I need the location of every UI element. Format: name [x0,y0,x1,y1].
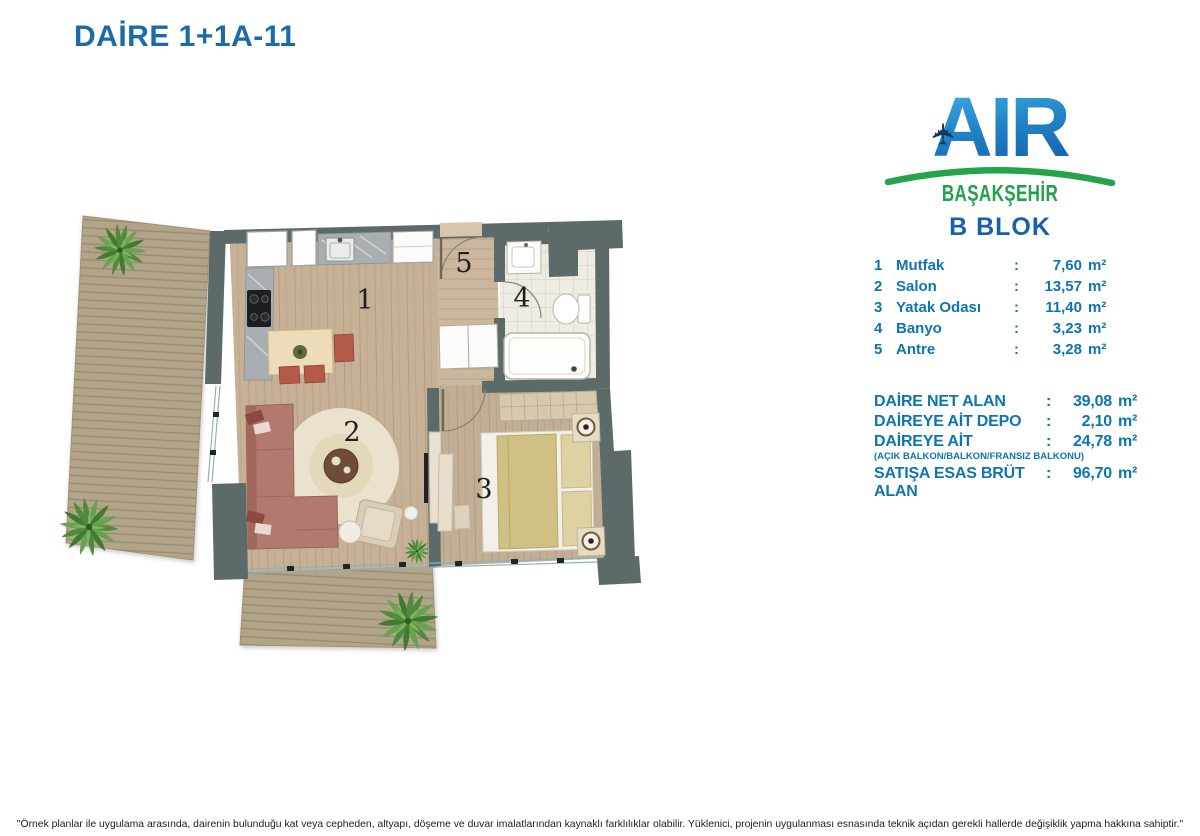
room-name: Mutfak [896,257,1014,274]
room-row-banyo: 4 Banyo : 3,23 m² [874,320,1134,337]
entrance-door-opening [440,222,482,237]
summary-value: 24,78 [1056,433,1112,451]
room-row-yatak-odasi: 3 Yatak Odası : 11,40 m² [874,299,1134,316]
kitchen-window-1 [247,231,287,267]
armchair [352,499,404,549]
summary-value: 96,70 [1056,465,1112,483]
left-pier [212,483,248,580]
room-no: 1 [874,257,896,274]
area-summary: DAİRE NET ALAN : 39,08 m² DAİREYE AİT DE… [874,393,1154,503]
air-logo: AIR ✈ [870,76,1130,178]
bathtub [504,333,590,379]
coffee-table [324,449,358,483]
summary-row-net-alan: DAİRE NET ALAN : 39,08 m² [874,393,1154,411]
stool [454,505,470,529]
room-name: Antre [896,341,1014,358]
dresser [438,454,453,531]
room-value: 3,28 [1026,341,1082,358]
disclaimer-text: "Örnek planlar ile uygulama arasında, da… [0,819,1200,830]
summary-sep: : [1046,413,1056,431]
room-unit: m² [1082,257,1110,274]
entry-closet [439,324,498,369]
logo-block: AIR ✈ BAŞAKŞEHİR B BLOK [870,76,1130,242]
room-sep: : [1014,320,1026,337]
room-no: 5 [874,341,896,358]
terrace-glass-door [208,386,220,482]
room-unit: m² [1082,320,1110,337]
summary-unit: m² [1112,433,1140,451]
room-row-salon: 2 Salon : 13,57 m² [874,278,1134,295]
summary-unit: m² [1112,413,1140,431]
block-title: B BLOK [870,213,1130,242]
room-row-antre: 5 Antre : 3,28 m² [874,341,1134,358]
cooktop [247,290,271,327]
room-name: Salon [896,278,1014,295]
decor-plant-white [405,507,418,520]
summary-unit: m² [1112,465,1140,483]
toilet-tank [578,295,590,323]
bed-blanket [497,434,558,549]
room-sep: : [1014,257,1026,274]
label-salon: 2 [343,417,360,448]
entry-bath-wall-upper [494,236,505,282]
room-sep: : [1014,299,1026,316]
side-table [339,521,361,543]
room-name: Yatak Odası [896,299,1014,316]
label-banyo: 4 [513,283,530,314]
room-value: 3,23 [1026,320,1082,337]
room-no: 2 [874,278,896,295]
room-row-mutfak: 1 Mutfak : 7,60 m² [874,257,1134,274]
summary-row-brut-alan: SATIŞA ESAS BRÜT ALAN : 96,70 m² [874,465,1154,501]
summary-label: SATIŞA ESAS BRÜT ALAN [874,465,1046,501]
summary-row-daireye-ait: DAİREYE AİT : 24,78 m² [874,433,1154,451]
room-value: 11,40 [1026,299,1082,316]
toilet [553,294,579,324]
logo-subtitle: BAŞAKŞEHİR [904,180,1096,207]
tv [424,453,428,503]
room-no: 3 [874,299,896,316]
room-sep: : [1014,341,1026,358]
summary-label: DAİREYE AİT DEPO [874,413,1046,431]
summary-label: DAİRE NET ALAN [874,393,1046,411]
room-value: 7,60 [1026,257,1082,274]
summary-sep: : [1046,433,1056,451]
summary-value: 2,10 [1056,413,1112,431]
summary-balkon-note: (AÇIK BALKON/BALKON/FRANSIZ BALKONU) [874,451,1154,462]
summary-unit: m² [1112,393,1140,411]
room-unit: m² [1082,278,1110,295]
airplane-icon: ✈ [928,121,961,146]
room-sep: : [1014,278,1026,295]
summary-row-depo: DAİREYE AİT DEPO : 2,10 m² [874,413,1154,431]
floorplan-page: DAİRE 1+1A-11 [0,0,1200,836]
label-antre: 5 [455,248,472,279]
label-yatak-odasi: 3 [475,474,492,505]
label-mutfak: 1 [356,285,373,316]
room-list: 1 Mutfak : 7,60 m² 2 Salon : 13,57 m² 3 … [874,257,1134,362]
summary-value: 39,08 [1056,393,1112,411]
right-pier [600,450,635,562]
right-foot-pier [597,556,641,585]
closet-box-2 [468,324,498,368]
room-unit: m² [1082,299,1110,316]
room-value: 13,57 [1026,278,1082,295]
bathtub-drain [571,366,577,372]
kitchen-window-2 [292,230,316,266]
room-unit: m² [1082,341,1110,358]
bathroom-right-wall [595,235,610,389]
room-no: 4 [874,320,896,337]
closet-box-1 [439,325,469,369]
windows [247,230,316,267]
summary-sep: : [1046,465,1056,483]
summary-sep: : [1046,393,1056,411]
room-name: Banyo [896,320,1014,337]
summary-label: DAİREYE AİT [874,433,1046,451]
